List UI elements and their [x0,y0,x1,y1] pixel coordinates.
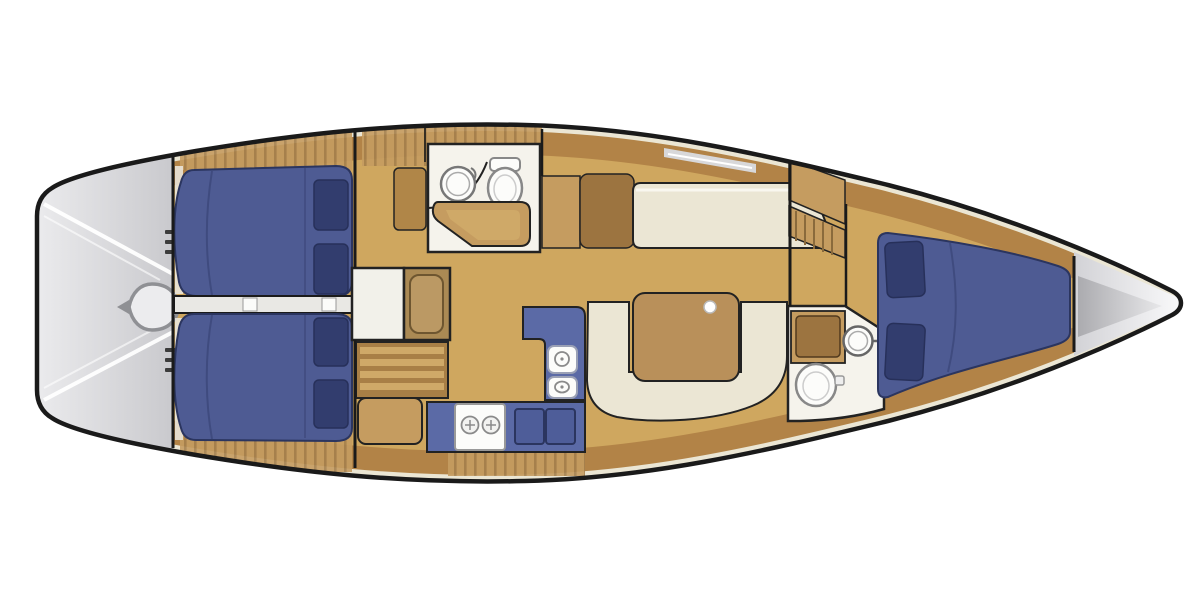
salon-table [633,293,739,381]
companionway-steps-inner [410,275,443,333]
galley-sink-round-icon [548,377,577,398]
companionway-landing [352,268,404,340]
aft-cabin-port [174,166,352,296]
pillow [314,180,348,230]
cabinet-by-head [394,168,426,230]
walkway-between-aft-cabins [174,296,354,313]
walkway-tab [243,298,257,311]
settee-armrest [580,174,634,248]
aft-head [428,144,540,252]
transom-swim-platform [28,118,178,484]
burner-module-icon [548,346,577,373]
settee-end-cabinet [542,176,580,248]
pillow [885,241,926,298]
ladder-steps [356,342,448,398]
two-burner-stove-icon [455,404,505,450]
forward-head [788,306,884,421]
pillow [885,323,926,381]
double-sink-icon [515,409,575,444]
aft-cabin-starboard [174,314,352,441]
pillow [314,318,348,366]
dinette-group [587,293,787,421]
toilet-icon [488,158,522,208]
boat-floor-plan [0,0,1200,600]
walkway-tab [322,298,336,311]
floor-plan-canvas [0,0,1200,600]
galley-cabinet-aft [358,398,422,444]
pillow [314,244,348,294]
pillow [314,380,348,428]
anchor-locker [1074,252,1186,356]
sink-icon [441,167,475,201]
mast-post-icon [704,301,716,313]
vanity-counter [791,311,845,363]
